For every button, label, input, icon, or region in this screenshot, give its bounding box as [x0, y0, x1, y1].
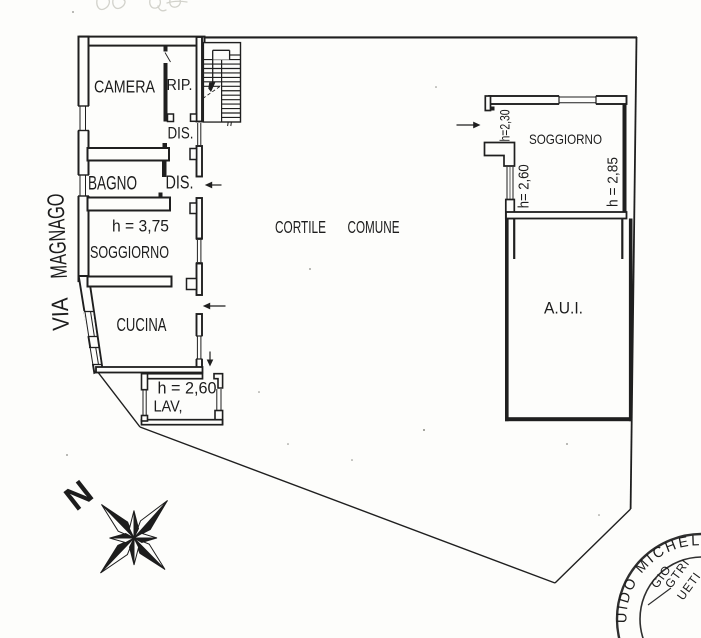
svg-text:A.U.I.: A.U.I. — [544, 299, 583, 318]
svg-text:RIP.: RIP. — [167, 77, 193, 94]
svg-text:CAMERA: CAMERA — [94, 77, 155, 97]
svg-text:CUCINA: CUCINA — [117, 314, 167, 335]
svg-text:VIA: VIA — [47, 297, 74, 331]
svg-text:DIS.: DIS. — [166, 173, 194, 193]
svg-text:MAGNAGO: MAGNAGO — [42, 193, 72, 279]
svg-text:LAV,: LAV, — [154, 399, 183, 416]
svg-text:CORTILE: CORTILE — [275, 217, 326, 237]
svg-text:DIS.: DIS. — [168, 125, 194, 143]
svg-text:h = 3,75: h = 3,75 — [112, 217, 169, 236]
svg-text:h=2,30: h=2,30 — [497, 109, 513, 141]
svg-text:SOGGIORNO: SOGGIORNO — [90, 242, 169, 262]
svg-text:COMUNE: COMUNE — [348, 217, 400, 237]
svg-text:h= 2,60: h= 2,60 — [517, 164, 533, 208]
svg-text:BAGNO: BAGNO — [88, 174, 137, 195]
svg-text:SOGGIORNO: SOGGIORNO — [529, 131, 602, 147]
svg-text:h = 2,60: h = 2,60 — [158, 380, 217, 398]
svg-text:h = 2,85: h = 2,85 — [606, 157, 622, 207]
